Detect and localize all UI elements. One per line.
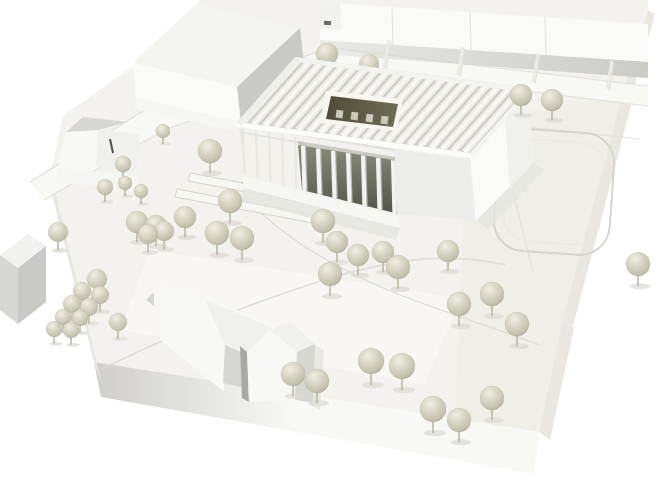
tree [138, 224, 158, 244]
colonnade-column [378, 158, 380, 210]
tree [115, 156, 131, 172]
pergola-post [295, 136, 297, 188]
tree [626, 252, 650, 276]
tree [109, 313, 127, 331]
colonnade-column [333, 151, 335, 199]
tree [311, 209, 335, 233]
tree-shadow [285, 393, 305, 399]
bg-top-window-tick [324, 21, 331, 25]
tree-shadow [142, 250, 159, 255]
tree [386, 255, 410, 279]
tree [48, 222, 68, 242]
colonnade-column [318, 148, 320, 194]
tree-shadow [52, 248, 69, 253]
tree-shadow [178, 235, 197, 240]
tree-shadow [121, 194, 133, 197]
tree [510, 84, 532, 106]
tree [174, 206, 196, 228]
model-scene [0, 0, 658, 487]
tree-shadow [484, 417, 504, 423]
tree [198, 139, 222, 163]
tree-shadow [509, 343, 529, 349]
pergola-post [282, 134, 284, 185]
tree [326, 231, 348, 253]
tree [305, 369, 329, 393]
tree [218, 189, 242, 213]
tree [46, 321, 62, 337]
tree-shadow [484, 313, 504, 319]
tree [480, 282, 504, 306]
tree [541, 89, 563, 111]
colonnade-column [303, 146, 305, 191]
tree-shadow [112, 336, 127, 340]
tree-shadow [390, 286, 410, 292]
tree [118, 176, 132, 190]
tree-shadow [66, 343, 80, 347]
tree [347, 244, 369, 266]
tree-shadow [514, 113, 533, 118]
tree [87, 269, 107, 289]
tree-shadow [441, 269, 460, 274]
tree-shadow [351, 273, 370, 278]
edge-wall-building [0, 234, 46, 324]
tree [437, 240, 459, 262]
tree [389, 353, 415, 379]
tree [447, 292, 471, 316]
tree-shadow [158, 247, 175, 252]
tree-shadow [362, 382, 384, 388]
tree-shadow [209, 252, 229, 258]
tree [63, 322, 79, 338]
tree [480, 386, 504, 410]
tree-shadow [159, 142, 171, 145]
tree-shadow [322, 293, 342, 299]
front-wall-right [393, 149, 474, 220]
tree-shadow [137, 202, 149, 205]
pergola-post [256, 130, 258, 178]
tree [281, 362, 305, 386]
architectural-model-photo [0, 0, 658, 487]
tree-shadow [451, 323, 471, 329]
tree-shadow [309, 400, 329, 406]
tree [230, 226, 254, 250]
tree-shadow [393, 387, 415, 393]
tree-shadow [630, 283, 650, 289]
tree [358, 348, 384, 374]
tree [505, 312, 529, 336]
tree [420, 396, 446, 422]
colonnade-column [348, 153, 350, 202]
tree-shadow [424, 430, 446, 436]
tree [97, 179, 113, 195]
tree [156, 124, 170, 138]
pergola-post [269, 132, 271, 181]
tree-shadow [49, 342, 63, 346]
tree-shadow [202, 170, 222, 176]
tree-shadow [545, 118, 564, 123]
colonnade-column [363, 155, 365, 206]
tree-shadow [234, 257, 254, 263]
tree [318, 262, 342, 286]
tree-shadow [100, 200, 114, 204]
tree [447, 408, 471, 432]
tree [134, 184, 148, 198]
tree-shadow [451, 439, 471, 445]
bg-top-left-end [318, 2, 341, 30]
tree [205, 221, 229, 245]
